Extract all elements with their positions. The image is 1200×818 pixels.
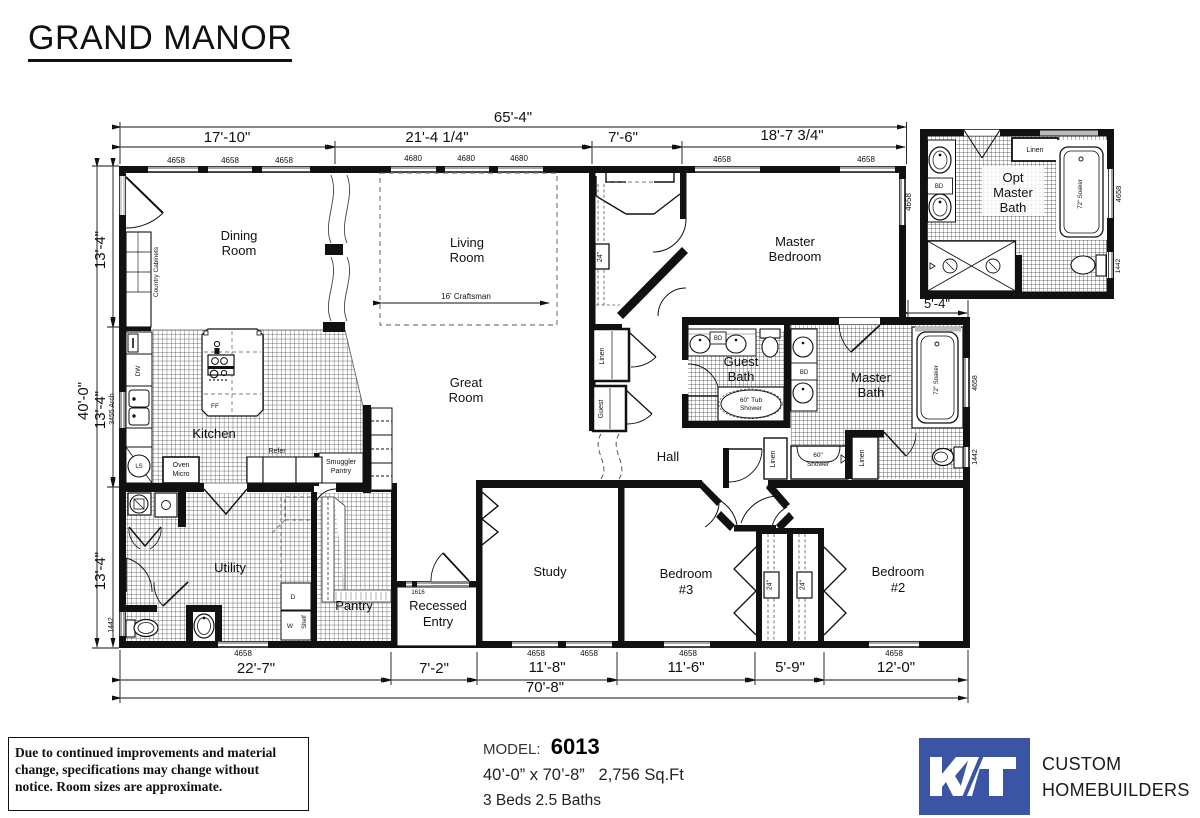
svg-text:Shower: Shower (740, 405, 763, 412)
svg-text:Master: Master (851, 370, 891, 385)
svg-text:4658: 4658 (679, 649, 697, 658)
svg-text:18'-7 3/4": 18'-7 3/4" (760, 127, 823, 144)
svg-text:17'-10": 17'-10" (204, 129, 251, 146)
svg-text:Micro: Micro (172, 471, 189, 478)
svg-text:Kitchen: Kitchen (192, 426, 235, 441)
svg-text:60" Tub: 60" Tub (740, 397, 763, 404)
svg-text:24": 24" (597, 251, 604, 262)
svg-text:12'-0": 12'-0" (877, 659, 915, 676)
svg-text:Living: Living (450, 235, 484, 250)
svg-text:Great: Great (450, 375, 483, 390)
svg-text:Bath: Bath (728, 369, 755, 384)
svg-text:4658: 4658 (885, 649, 903, 658)
svg-text:4658: 4658 (275, 156, 293, 165)
svg-text:FF: FF (211, 403, 219, 410)
svg-text:70'-8": 70'-8" (526, 679, 564, 696)
svg-text:13'-4": 13'-4" (92, 391, 109, 429)
svg-text:Master: Master (993, 185, 1033, 200)
svg-text:Linen: Linen (770, 450, 777, 467)
svg-text:Bath: Bath (1000, 200, 1027, 215)
svg-text:1442: 1442 (972, 449, 979, 465)
svg-text:Pantry: Pantry (335, 598, 373, 613)
svg-text:Master: Master (775, 234, 815, 249)
svg-text:4680: 4680 (404, 154, 422, 163)
svg-text:Refer: Refer (268, 448, 286, 455)
svg-text:Room: Room (450, 250, 485, 265)
svg-text:Linen: Linen (599, 347, 606, 364)
svg-text:13'-4": 13'-4" (92, 552, 109, 590)
svg-text:24": 24" (800, 579, 807, 590)
svg-text:13'-4": 13'-4" (92, 231, 109, 269)
svg-text:BD: BD (714, 336, 723, 342)
svg-text:Bedroom: Bedroom (769, 249, 822, 264)
svg-text:Oven: Oven (173, 462, 190, 469)
svg-text:4680: 4680 (457, 154, 475, 163)
svg-text:LS: LS (135, 464, 142, 470)
svg-text:22'-7": 22'-7" (237, 660, 275, 677)
svg-text:60": 60" (813, 452, 823, 459)
svg-text:4658: 4658 (527, 649, 545, 658)
svg-text:Bedroom: Bedroom (872, 564, 925, 579)
svg-text:4658: 4658 (857, 155, 875, 164)
svg-text:7'-2": 7'-2" (419, 660, 449, 677)
svg-text:4658: 4658 (167, 156, 185, 165)
svg-text:Room: Room (222, 243, 257, 258)
svg-text:Room: Room (449, 390, 484, 405)
svg-text:Entry: Entry (423, 614, 454, 629)
svg-text:Utility: Utility (214, 560, 246, 575)
svg-text:Study: Study (533, 564, 567, 579)
svg-text:BD: BD (935, 184, 944, 190)
svg-text:5'-9": 5'-9" (775, 659, 805, 676)
svg-text:4658: 4658 (904, 193, 913, 211)
svg-text:Bedroom: Bedroom (660, 566, 713, 581)
svg-text:Dining: Dining (221, 228, 258, 243)
svg-text:1616: 1616 (411, 590, 425, 596)
svg-text:Linen: Linen (859, 449, 866, 466)
svg-text:Guest: Guest (724, 354, 759, 369)
svg-text:Opt: Opt (1003, 170, 1024, 185)
svg-text:21'-4 1/4": 21'-4 1/4" (405, 129, 468, 146)
svg-text:5'-4": 5'-4" (924, 296, 950, 311)
svg-text:65'-4": 65'-4" (494, 109, 532, 126)
svg-text:16' Craftsman: 16' Craftsman (441, 292, 491, 301)
svg-text:Shelf: Shelf (302, 615, 308, 629)
svg-text:4658: 4658 (234, 649, 252, 658)
svg-text:3455 Arch: 3455 Arch (109, 393, 116, 425)
svg-text:11'-6": 11'-6" (667, 659, 704, 676)
svg-text:4658: 4658 (1114, 186, 1123, 203)
svg-text:W: W (287, 623, 294, 630)
svg-text:Smuggler: Smuggler (326, 459, 357, 466)
svg-text:72" Soaker: 72" Soaker (1078, 179, 1084, 208)
svg-text:1442: 1442 (1115, 258, 1122, 273)
svg-text:Guest: Guest (598, 400, 605, 419)
svg-text:Recessed: Recessed (409, 598, 467, 613)
svg-text:72" Soaker: 72" Soaker (934, 365, 940, 394)
svg-text:4658: 4658 (221, 156, 239, 165)
svg-text:Country Cabinets: Country Cabinets (153, 246, 160, 297)
svg-text:Bath: Bath (858, 385, 885, 400)
svg-text:BD: BD (800, 370, 809, 376)
svg-text:24": 24" (767, 579, 774, 590)
svg-text:11'-8": 11'-8" (528, 659, 565, 676)
svg-text:Pantry: Pantry (331, 468, 352, 475)
svg-text:#2: #2 (891, 580, 905, 595)
svg-text:4658: 4658 (972, 375, 979, 391)
svg-text:DW: DW (135, 365, 142, 377)
svg-text:#3: #3 (679, 582, 693, 597)
svg-text:4658: 4658 (580, 649, 598, 658)
svg-text:7'-6": 7'-6" (608, 129, 638, 146)
svg-text:4658: 4658 (713, 155, 731, 164)
svg-text:4680: 4680 (510, 154, 528, 163)
svg-text:1442: 1442 (108, 617, 115, 633)
svg-text:40'-0": 40'-0" (75, 382, 92, 420)
svg-text:Shower: Shower (807, 461, 830, 468)
svg-text:Hall: Hall (657, 449, 680, 464)
svg-text:Linen: Linen (1026, 147, 1043, 154)
svg-text:D: D (291, 594, 296, 601)
